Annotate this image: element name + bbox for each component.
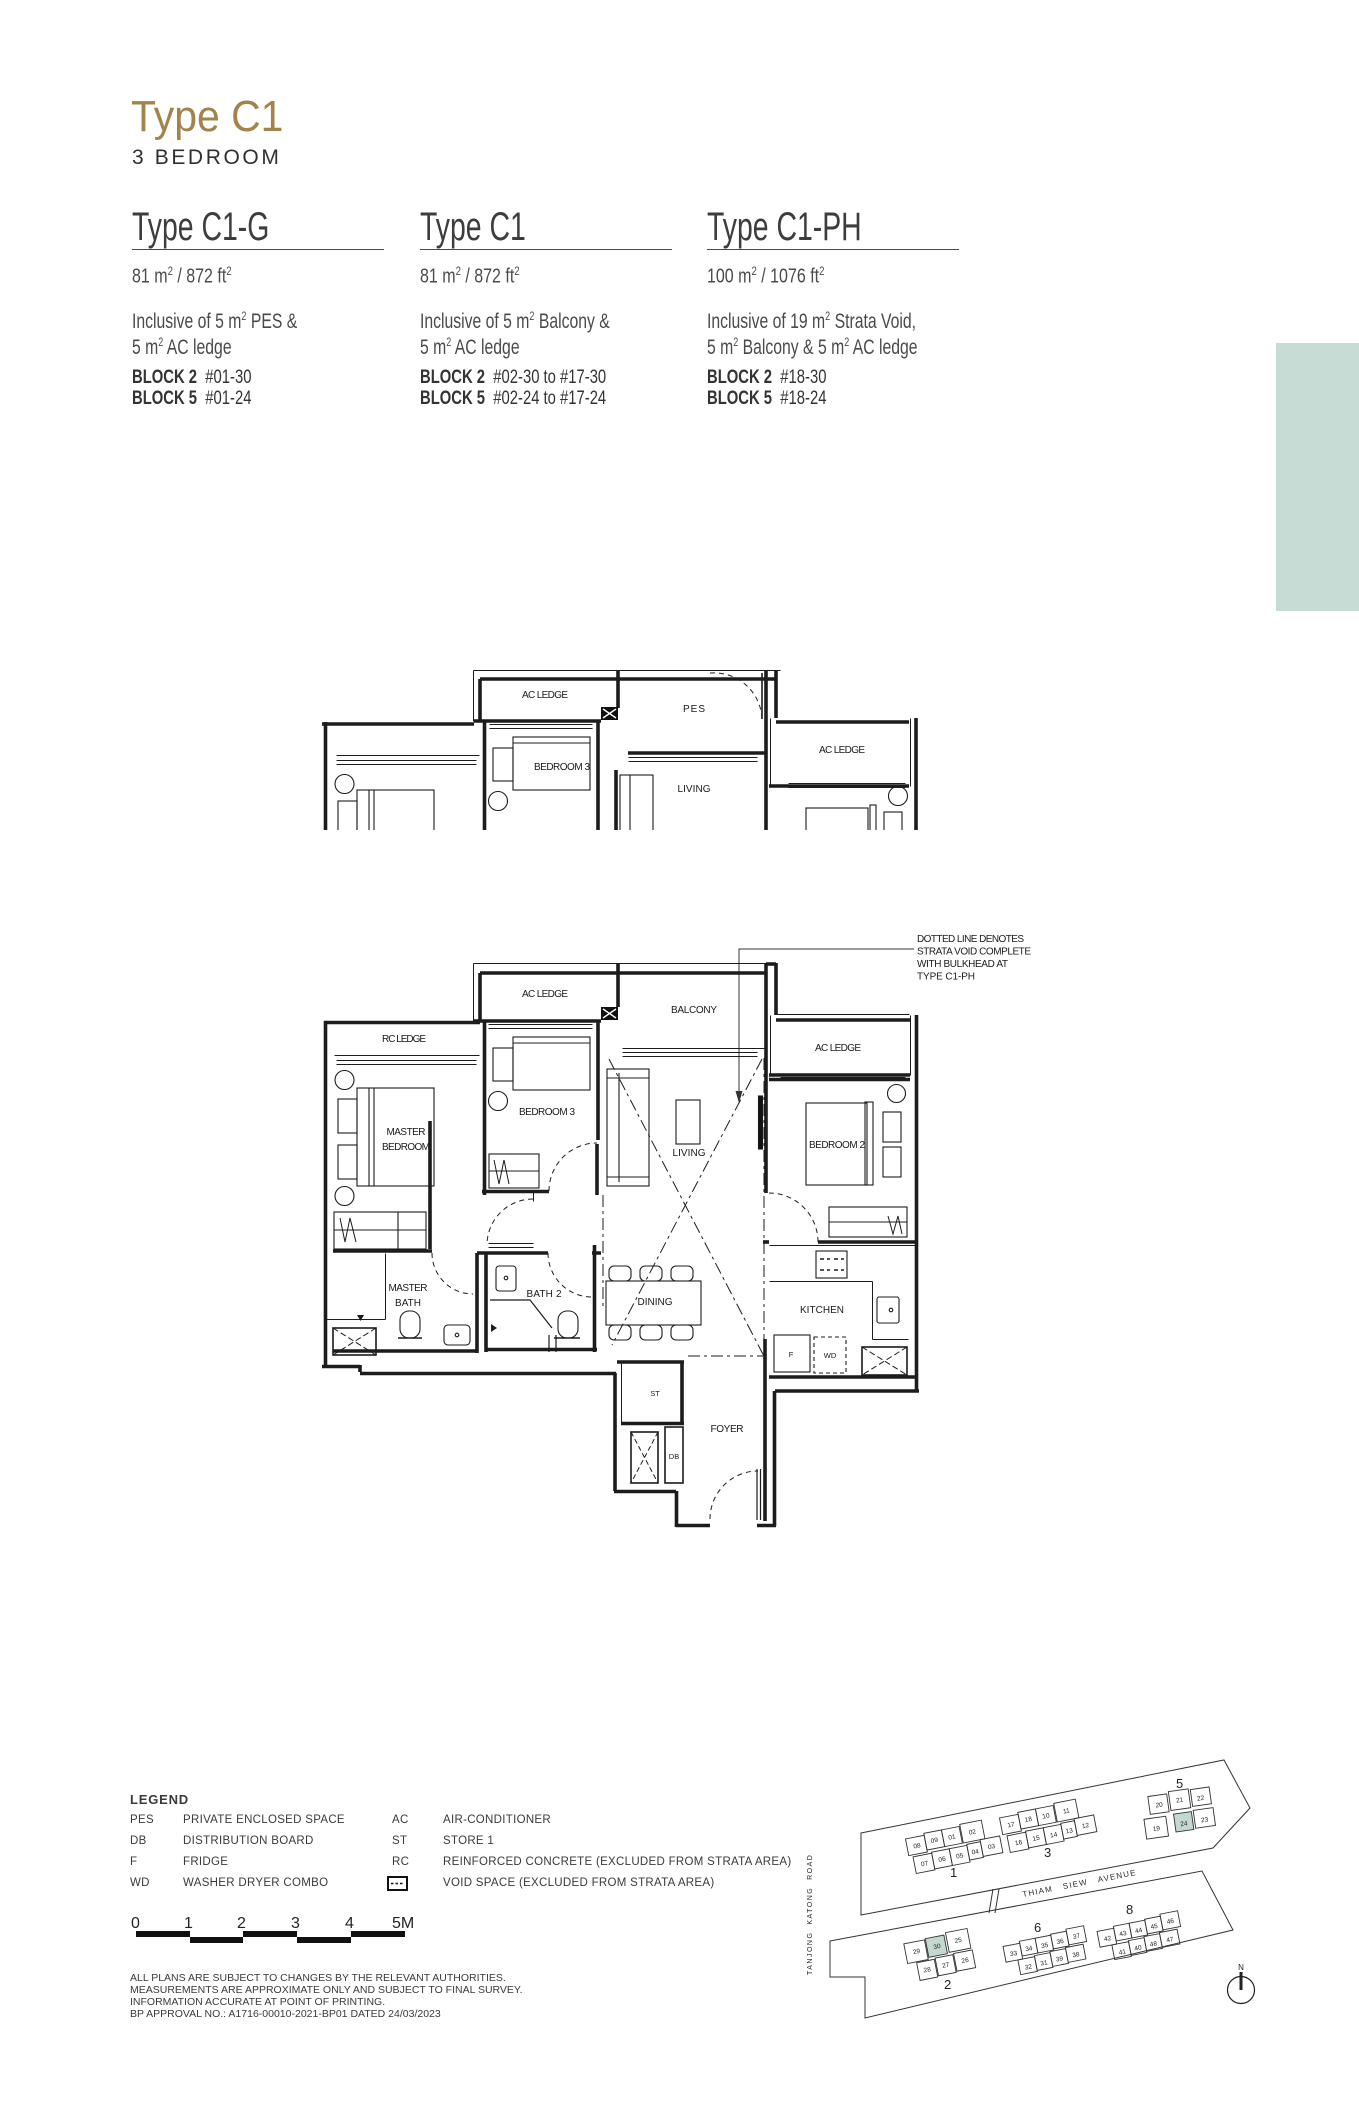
svg-text:18: 18 <box>1024 1816 1033 1824</box>
svg-text:FOYER: FOYER <box>711 1424 744 1435</box>
svg-text:06: 06 <box>938 1856 947 1864</box>
svg-text:43: 43 <box>1119 1930 1128 1938</box>
svg-text:KITCHEN: KITCHEN <box>800 1305 844 1316</box>
svg-text:F: F <box>789 1350 794 1359</box>
svg-text:BALCONY: BALCONY <box>671 1005 717 1016</box>
svg-text:DOTTED LINE DENOTES: DOTTED LINE DENOTES <box>917 934 1024 945</box>
svg-text:34: 34 <box>1025 1945 1034 1953</box>
svg-text:ST: ST <box>650 1389 660 1398</box>
svg-text:BEDROOM 3: BEDROOM 3 <box>519 1107 575 1118</box>
svg-text:BEDROOM 3: BEDROOM 3 <box>534 762 590 773</box>
svg-text:45: 45 <box>1150 1923 1159 1931</box>
svg-text:22: 22 <box>1197 1795 1206 1803</box>
svg-text:BEDROOM 2: BEDROOM 2 <box>809 1140 865 1151</box>
svg-text:MASTER: MASTER <box>389 1283 428 1294</box>
svg-text:4: 4 <box>345 1915 354 1932</box>
svg-text:07: 07 <box>920 1860 929 1868</box>
svg-text:28: 28 <box>923 1966 932 1974</box>
svg-text:N: N <box>1238 1963 1244 1972</box>
svg-text:3: 3 <box>1044 1845 1051 1860</box>
svg-text:12: 12 <box>1081 1822 1090 1830</box>
svg-text:26: 26 <box>961 1957 970 1965</box>
svg-text:LIVING: LIVING <box>678 784 711 795</box>
svg-text:AC LEDGE: AC LEDGE <box>815 1043 861 1054</box>
svg-text:8: 8 <box>1126 1902 1133 1917</box>
svg-text:40: 40 <box>1134 1944 1143 1952</box>
svg-text:32: 32 <box>1024 1963 1033 1971</box>
svg-text:48: 48 <box>1149 1940 1158 1948</box>
svg-text:10: 10 <box>1042 1812 1051 1820</box>
svg-text:2: 2 <box>237 1915 246 1932</box>
svg-text:47: 47 <box>1166 1936 1175 1944</box>
svg-text:02: 02 <box>968 1828 977 1836</box>
svg-text:15: 15 <box>1032 1835 1041 1843</box>
svg-text:19: 19 <box>1152 1825 1161 1833</box>
svg-text:MASTER: MASTER <box>387 1127 426 1138</box>
svg-text:25: 25 <box>954 1937 963 1945</box>
svg-text:DINING: DINING <box>638 1297 673 1308</box>
svg-text:WITH BULKHEAD AT: WITH BULKHEAD AT <box>917 959 1008 970</box>
svg-text:3: 3 <box>291 1915 300 1932</box>
svg-text:LIVING: LIVING <box>673 1148 706 1159</box>
svg-text:TANJONG KATONG ROAD: TANJONG KATONG ROAD <box>807 1854 814 1975</box>
svg-text:16: 16 <box>1014 1839 1023 1847</box>
svg-text:1: 1 <box>950 1865 957 1880</box>
svg-text:03: 03 <box>987 1843 996 1851</box>
svg-text:39: 39 <box>1055 1955 1064 1963</box>
svg-text:35: 35 <box>1040 1942 1049 1950</box>
svg-text:PES: PES <box>683 704 705 715</box>
svg-text:05: 05 <box>956 1852 965 1860</box>
svg-text:BEDROOM: BEDROOM <box>382 1142 430 1153</box>
svg-text:23: 23 <box>1201 1816 1210 1824</box>
svg-text:WD: WD <box>824 1351 837 1360</box>
svg-text:AC LEDGE: AC LEDGE <box>522 989 568 1000</box>
svg-text:1: 1 <box>184 1915 193 1932</box>
svg-text:38: 38 <box>1072 1951 1081 1959</box>
svg-text:08: 08 <box>913 1842 922 1850</box>
svg-text:04: 04 <box>971 1848 980 1856</box>
svg-text:TYPE C1-PH: TYPE C1-PH <box>917 972 975 983</box>
svg-text:DB: DB <box>669 1452 679 1461</box>
svg-text:20: 20 <box>1155 1802 1164 1810</box>
svg-text:01: 01 <box>948 1833 957 1841</box>
svg-text:09: 09 <box>930 1837 939 1845</box>
svg-text:5: 5 <box>1176 1776 1183 1791</box>
svg-text:2: 2 <box>944 1977 951 1992</box>
svg-text:BATH 2: BATH 2 <box>527 1289 562 1300</box>
svg-text:BATH: BATH <box>395 1298 421 1309</box>
svg-text:37: 37 <box>1072 1933 1081 1941</box>
svg-text:42: 42 <box>1103 1935 1112 1943</box>
svg-text:STRATA VOID COMPLETE: STRATA VOID COMPLETE <box>917 947 1031 958</box>
svg-text:RC LEDGE: RC LEDGE <box>382 1034 426 1045</box>
svg-text:41: 41 <box>1118 1948 1127 1956</box>
svg-text:11: 11 <box>1063 1807 1071 1815</box>
svg-text:27: 27 <box>942 1962 951 1970</box>
svg-text:29: 29 <box>912 1948 921 1956</box>
svg-text:0: 0 <box>131 1915 140 1932</box>
svg-text:5M: 5M <box>392 1915 414 1932</box>
svg-text:17: 17 <box>1007 1821 1016 1829</box>
svg-text:AC LEDGE: AC LEDGE <box>819 745 865 756</box>
svg-text:21: 21 <box>1176 1797 1185 1805</box>
svg-text:31: 31 <box>1040 1959 1049 1967</box>
svg-text:44: 44 <box>1134 1927 1143 1935</box>
svg-text:6: 6 <box>1034 1920 1041 1935</box>
svg-text:14: 14 <box>1050 1831 1059 1839</box>
svg-text:24: 24 <box>1180 1820 1189 1828</box>
svg-text:46: 46 <box>1166 1918 1175 1926</box>
svg-text:36: 36 <box>1056 1938 1065 1946</box>
svg-text:33: 33 <box>1009 1950 1018 1958</box>
svg-text:AC LEDGE: AC LEDGE <box>522 690 568 701</box>
svg-text:13: 13 <box>1065 1827 1074 1835</box>
